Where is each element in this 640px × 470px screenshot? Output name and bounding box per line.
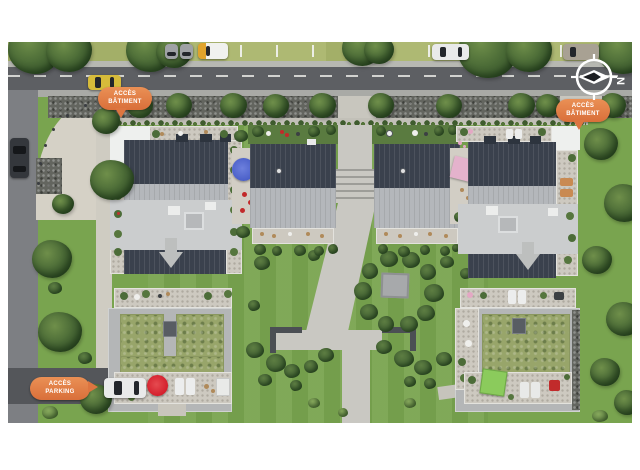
terrace-plant <box>508 394 514 400</box>
terrace-table <box>288 232 292 236</box>
tree <box>368 93 394 118</box>
roof-arrow <box>165 238 177 252</box>
terrace-plant <box>120 292 128 300</box>
pitched-roof <box>468 254 556 278</box>
terrace-plant <box>224 290 232 298</box>
shrub <box>272 246 282 256</box>
access-building-pointer-right <box>573 120 585 130</box>
roof-vent-box <box>548 208 558 216</box>
shrub <box>404 376 416 387</box>
roof-arrow <box>516 254 540 270</box>
flower-bed-red <box>117 212 120 215</box>
roof-dormer <box>484 136 496 144</box>
shrub <box>440 256 454 268</box>
shrub <box>592 410 608 422</box>
roof-vent <box>276 168 282 174</box>
shrub <box>328 244 338 254</box>
shrub <box>417 305 435 321</box>
shrub <box>246 342 264 358</box>
pitched-roof <box>124 140 228 184</box>
terrace-chair <box>384 232 388 236</box>
canopy-green <box>479 368 507 396</box>
terrace-plant <box>540 292 547 299</box>
terrace-table <box>465 340 472 347</box>
garden-shed <box>381 273 410 299</box>
bollard <box>52 128 55 131</box>
shrub <box>394 350 414 367</box>
tree <box>90 160 134 200</box>
access-building-pointer-left <box>115 108 127 118</box>
bollard <box>66 114 69 117</box>
car-window <box>134 381 139 395</box>
terrace-table <box>134 294 140 300</box>
umbrella-red <box>147 375 168 396</box>
tree <box>614 390 632 415</box>
tree <box>604 184 632 222</box>
roof-slope <box>124 184 228 200</box>
shrub <box>376 340 392 354</box>
shrub <box>236 226 250 238</box>
shrub <box>420 245 430 255</box>
roof-vent <box>400 168 406 174</box>
terrace-chair <box>424 132 428 136</box>
roof-vent-box <box>486 206 498 215</box>
compass-north-label: N <box>614 77 626 85</box>
lounger-white <box>531 382 540 398</box>
tree <box>263 94 289 118</box>
terrace-plant <box>220 130 228 138</box>
terrace-item-red <box>549 380 560 391</box>
roof-arrow <box>522 242 534 254</box>
parked-car-white <box>432 44 469 60</box>
car-window <box>206 46 210 56</box>
shrub <box>304 360 318 373</box>
aerial-site-plan: ACCÈS BÂTIMENT ACCÈS BÂTIMENT ACCÈS PARK… <box>8 42 632 423</box>
terrace-table <box>463 320 470 327</box>
shrub <box>258 374 272 386</box>
flower-bed-pink <box>467 292 473 298</box>
terrace-chair <box>428 232 432 236</box>
shrub <box>400 316 418 332</box>
bollard <box>39 162 42 165</box>
parking-slot-line <box>428 45 430 57</box>
storage-box <box>216 378 230 396</box>
roof-vent-box <box>168 206 180 215</box>
terrace-plant <box>230 248 238 256</box>
tree <box>590 358 620 386</box>
tree <box>52 194 74 214</box>
shrub <box>354 282 372 300</box>
roof-dormer <box>200 134 212 142</box>
roof-dormer <box>530 136 541 144</box>
terrace-chair <box>444 234 448 238</box>
terrace-chair <box>296 132 300 136</box>
access-parking-arrow <box>88 381 98 393</box>
parking-slot-line <box>240 45 242 57</box>
shrub <box>424 284 444 302</box>
lounger-white <box>506 129 513 139</box>
shrub <box>42 406 58 419</box>
terrace-plant <box>538 128 546 136</box>
lounger-white <box>186 378 195 395</box>
shrub <box>414 360 432 375</box>
roof-arrow <box>159 252 183 268</box>
tree <box>220 93 247 118</box>
car-window <box>13 146 26 154</box>
terrace-table <box>412 130 418 136</box>
terrace-plant <box>458 358 466 366</box>
shrub <box>378 316 394 332</box>
roof-terrace <box>114 288 232 308</box>
terrace-table <box>178 131 183 136</box>
roof-skylight <box>184 212 204 230</box>
terrace-plant <box>142 290 150 298</box>
bollard <box>37 182 40 185</box>
badge-line: PARKING <box>34 389 86 397</box>
pitched-roof <box>468 142 556 186</box>
patio-chair <box>460 188 464 192</box>
terrace-plant <box>564 256 572 264</box>
shrub <box>360 304 378 320</box>
shrub <box>376 126 386 136</box>
bollard <box>84 104 87 107</box>
roof-skylight <box>163 321 177 337</box>
terrace-chair <box>272 234 276 238</box>
roof-vent-box <box>205 202 216 210</box>
terrace-plant <box>568 154 576 162</box>
parked-car-gray <box>180 44 193 59</box>
shrub <box>338 408 348 417</box>
walkway-steps <box>334 169 376 203</box>
terrace-chair <box>204 384 209 389</box>
tree <box>309 93 336 118</box>
car-window <box>458 47 462 57</box>
terrace-chair <box>166 292 170 296</box>
shrub <box>308 126 320 137</box>
parked-car-gray <box>165 44 178 59</box>
shrub <box>434 126 444 136</box>
pitched-roof <box>374 144 460 188</box>
shrub <box>294 245 306 256</box>
car-window <box>182 52 191 56</box>
parking-slot-line <box>560 45 562 57</box>
parked-car-dark <box>10 138 29 178</box>
flat-roof <box>458 204 578 254</box>
car-window <box>440 47 446 57</box>
planting-bed <box>572 310 580 410</box>
flower-bed-pink <box>468 129 473 134</box>
shrub <box>48 282 62 294</box>
roof-chimney <box>307 139 316 145</box>
tree <box>166 93 192 118</box>
terrace-chair <box>211 389 215 393</box>
badge-line: ACCÈS <box>560 103 606 111</box>
shrub <box>318 348 334 362</box>
terrace-plant <box>152 130 160 138</box>
tree <box>32 240 72 278</box>
central-walkway <box>338 125 372 169</box>
terrace-plant <box>566 212 574 220</box>
lounger-white <box>508 290 516 304</box>
parked-car-yellow-white <box>198 43 228 59</box>
terrace-plant <box>468 376 476 384</box>
terrace-chair <box>320 234 324 238</box>
shrub <box>362 263 378 279</box>
shrub <box>254 244 266 255</box>
terrace-grill <box>554 292 564 300</box>
flower-bed-pink <box>458 141 462 145</box>
lounger-orange <box>560 178 573 186</box>
lounger-white <box>175 378 184 395</box>
roof-slope <box>468 186 556 204</box>
shrub <box>436 352 452 366</box>
terrace-plant <box>564 374 570 380</box>
tree <box>38 312 82 352</box>
lounger-white <box>520 382 529 398</box>
shrub <box>326 125 336 135</box>
roof-vent <box>386 130 393 137</box>
shrub <box>254 256 270 270</box>
patio-chair-red <box>285 133 289 137</box>
access-parking-badge: ACCÈS PARKING <box>30 377 90 400</box>
shrub <box>314 246 324 256</box>
parking-slot-line <box>276 45 278 57</box>
tree <box>606 302 632 336</box>
shrub <box>404 398 416 408</box>
terrace-chair <box>160 132 164 136</box>
terrace-plant <box>114 248 122 256</box>
patio-chair-red <box>280 130 284 134</box>
terrace-chair <box>204 130 208 134</box>
terrace-chair <box>158 294 162 298</box>
green-roof <box>482 314 570 378</box>
terrace-table <box>266 131 271 136</box>
compass-icon: N <box>570 50 628 104</box>
tree <box>584 128 618 160</box>
bollard <box>44 144 47 147</box>
garden-plaza-path <box>276 330 382 350</box>
shrub <box>420 264 436 280</box>
car-window <box>95 77 101 88</box>
lounger-white <box>518 290 526 304</box>
terrace-chair <box>260 232 264 236</box>
shrub <box>424 378 436 389</box>
badge-line: BÂTIMENT <box>560 111 606 119</box>
garden-wall <box>270 327 276 353</box>
shrub <box>398 246 410 257</box>
shrub <box>290 380 302 391</box>
shrub <box>234 130 248 142</box>
shrub <box>248 300 260 311</box>
terrace-plant <box>204 292 212 300</box>
roof-skylight <box>512 318 526 334</box>
car-window <box>13 166 26 172</box>
shrub <box>378 244 388 254</box>
tree <box>582 246 612 274</box>
pitched-roof <box>250 144 336 188</box>
roof-slope <box>374 188 460 228</box>
patio-chair-red <box>242 192 247 197</box>
shrub <box>284 364 300 378</box>
badge-line: BÂTIMENT <box>102 99 148 107</box>
terrace-plant <box>568 234 576 242</box>
patio-chair-red <box>240 208 245 213</box>
entry-path <box>158 404 186 416</box>
badge-line: ACCÈS <box>34 381 86 389</box>
terrace-chair <box>398 234 402 238</box>
tree <box>508 93 535 118</box>
shrub <box>266 354 286 372</box>
terrace-table <box>414 232 418 236</box>
shrub <box>308 398 320 408</box>
lounger-orange <box>560 189 573 197</box>
car-window <box>167 52 176 56</box>
shrub <box>78 352 92 364</box>
entering-car-white <box>104 378 146 398</box>
lounger-white <box>515 129 522 139</box>
car-window <box>114 381 122 395</box>
roof-skylight <box>498 216 518 233</box>
flower-bed-pink <box>463 145 466 148</box>
access-building-badge-left: ACCÈS BÂTIMENT <box>98 87 152 110</box>
tree <box>436 94 462 118</box>
terrace-chair <box>306 232 310 236</box>
roof-slope <box>250 188 336 228</box>
badge-line: ACCÈS <box>102 91 148 99</box>
terrace-plant <box>114 230 122 238</box>
terrace-plant <box>460 128 468 136</box>
terrace-plant <box>480 292 487 299</box>
parking-slot-line <box>312 45 314 57</box>
shrub <box>440 246 450 256</box>
shrub <box>252 126 264 137</box>
